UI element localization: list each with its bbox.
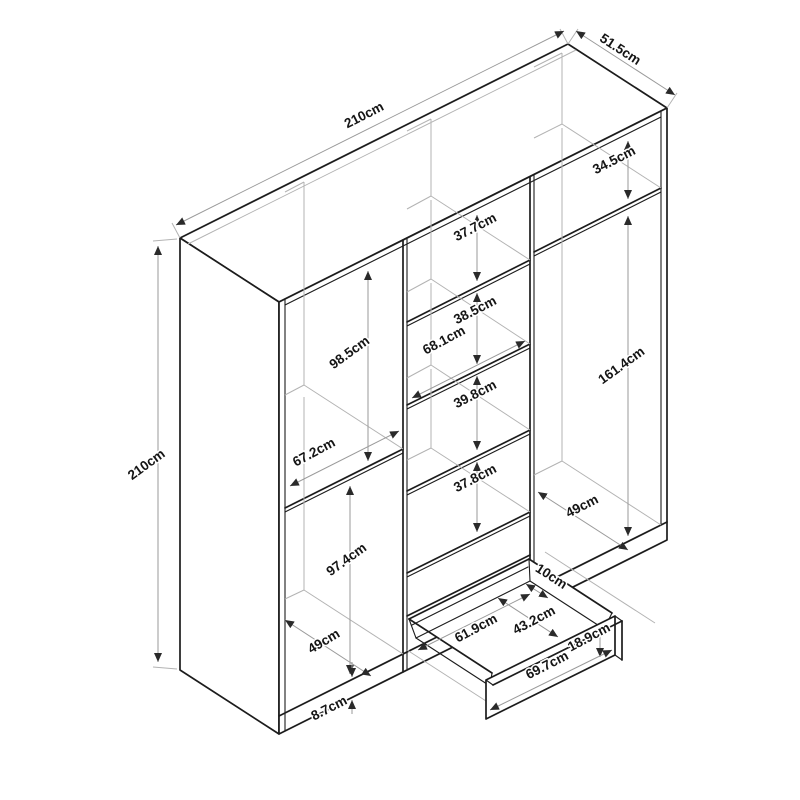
dim-overall-height-label: 210cm <box>125 446 168 483</box>
technical-drawing-canvas: 210cm 51.5cm 210cm 34.5cm 161.4cm 49cm 3… <box>0 0 800 800</box>
wardrobe-dimension-diagram: 210cm 51.5cm 210cm 34.5cm 161.4cm 49cm 3… <box>0 0 800 800</box>
left-side-face <box>180 238 279 734</box>
dim-overall-width-label: 210cm <box>342 99 386 131</box>
